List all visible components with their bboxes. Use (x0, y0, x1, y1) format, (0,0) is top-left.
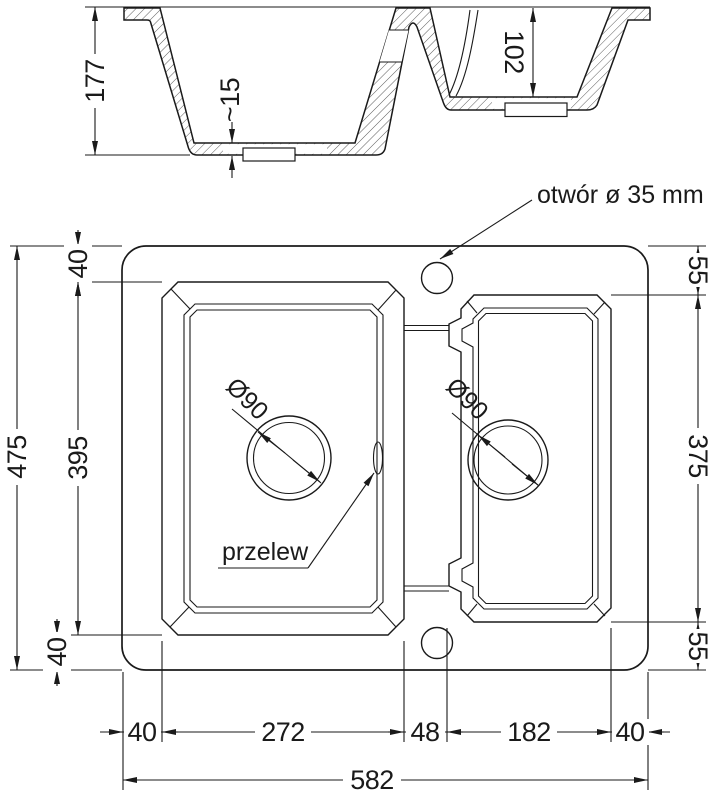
drain-flange-left (243, 148, 295, 161)
dim-label-40-left: 40 (124, 717, 161, 747)
plan-view: Ø90 Ø90 przelew otwór ø 35 mm (122, 181, 704, 670)
hole-leader (440, 200, 532, 259)
drain-left-inner (254, 423, 325, 494)
section-view: 177 102 ~15 (80, 7, 650, 178)
diameter-arrow (293, 460, 320, 482)
overflow-label: przelew (222, 538, 309, 566)
dim-text-395: 395 (63, 436, 93, 480)
sink-technical-drawing: 177 102 ~15 (0, 0, 715, 800)
dim-text-40-top: 40 (63, 249, 93, 278)
bevel-line (467, 604, 477, 616)
hole-note-label: otwór ø 35 mm (537, 181, 704, 209)
dim-label-55-bottom: 55 (683, 629, 713, 663)
drain-label-left: Ø90 (220, 372, 273, 425)
right-bowl-inner2 (479, 314, 593, 604)
overflow-leader (308, 473, 374, 568)
dim-label-395: 395 (63, 430, 93, 486)
faucet-hole-bottom (422, 628, 453, 659)
dim-text-55-bottom: 55 (683, 631, 713, 660)
dim-label-582: 582 (343, 765, 401, 795)
dim-label-182: 182 (501, 717, 557, 747)
drain-right-text: Ø90 (440, 372, 493, 425)
dim-text-40-left: 40 (127, 717, 156, 747)
dim-label-40-top: 40 (63, 244, 93, 284)
drain-label-right: Ø90 (440, 372, 493, 425)
dim-text-375: 375 (683, 434, 713, 478)
bevel-line (170, 607, 189, 627)
dim-text-15: ~15 (215, 78, 245, 122)
bevel-line (594, 302, 605, 314)
dim-text-582: 582 (350, 765, 394, 795)
dim-text-102: 102 (499, 30, 529, 74)
dim-text-40-bottom: 40 (42, 637, 72, 666)
dim-label-177: 177 (80, 54, 110, 108)
dim-label-475: 475 (2, 429, 32, 485)
left-bowl-outer (162, 282, 404, 635)
diameter-arrow (478, 435, 505, 457)
overflow-slot (374, 442, 383, 474)
dim-text-55-top: 55 (683, 255, 713, 284)
dim-label-40-right: 40 (612, 717, 649, 747)
drain-left-outer (247, 416, 331, 500)
dim-text-177: 177 (80, 59, 110, 103)
bowl-corner-line (449, 10, 470, 95)
dim-text-272: 272 (261, 717, 305, 747)
dim-text-40-right: 40 (615, 717, 644, 747)
dim-label-48: 48 (406, 717, 445, 747)
drawing-canvas: 177 102 ~15 (0, 0, 715, 800)
right-bowl-inner (462, 308, 598, 609)
bowl-corner-line (456, 10, 478, 96)
drain-flange-right (505, 103, 567, 117)
dim-label-272: 272 (255, 717, 311, 747)
drain-left-text: Ø90 (220, 372, 273, 425)
bevel-line (467, 301, 477, 313)
dim-label-375: 375 (683, 428, 713, 484)
dim-label-15: ~15 (215, 78, 245, 122)
bevel-line (171, 289, 190, 309)
faucet-hole-top (422, 263, 453, 294)
dim-text-48: 48 (410, 717, 439, 747)
diameter-arrow (258, 432, 285, 453)
dim-text-182: 182 (507, 717, 551, 747)
dim-text-475: 475 (2, 435, 32, 479)
plan-dimensions: 475 40 395 40 55 375 (2, 230, 713, 795)
left-bowl-inner (184, 304, 383, 613)
dim-label-55-top: 55 (683, 253, 713, 287)
bevel-line (594, 604, 605, 616)
bevel-line (378, 607, 396, 627)
diameter-arrow (512, 464, 538, 485)
dim-label-40-bottom: 40 (42, 632, 72, 672)
bevel-line (378, 290, 396, 310)
dim-label-102: 102 (499, 30, 529, 74)
section-wall-hatched (124, 8, 650, 155)
